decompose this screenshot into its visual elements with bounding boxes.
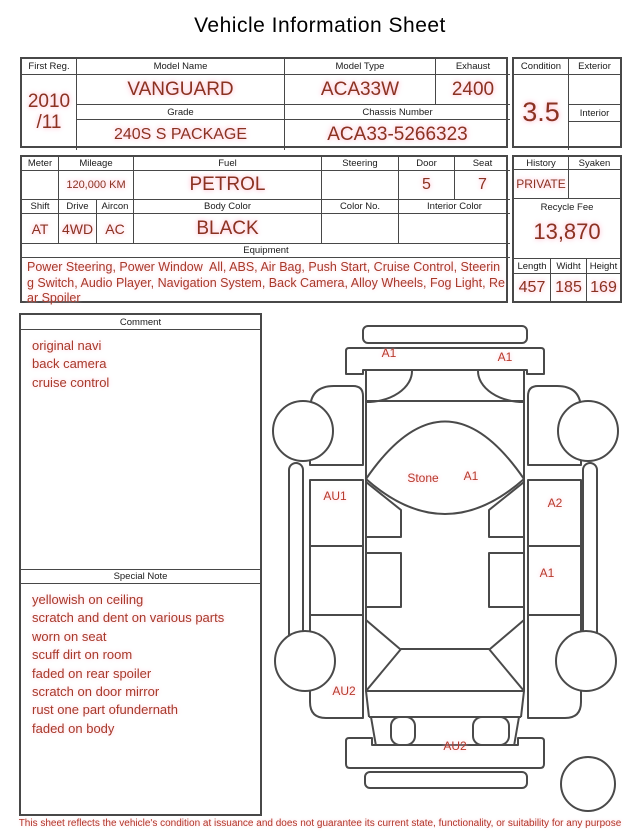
equipment-label: Equipment [22,244,510,258]
steering-label: Steering [322,157,399,171]
comment-header: Comment [21,315,260,330]
exhaust-value: 2400 [436,75,510,105]
interior-label: Interior [569,105,620,122]
footer-disclaimer: This sheet reflects the vehicle's condit… [0,818,640,829]
length-label: Length [514,259,551,274]
width-value: 185 [551,274,587,301]
vehicle-information-sheet: { "title": "Vehicle Information Sheet", … [0,0,640,835]
damage-label-windshield-stone: Stone [407,471,438,485]
special-note-line: scuff dirt on room [32,646,132,664]
history-fee-table: History Syaken PRIVATE Recycle Fee 13,87… [512,155,622,303]
syaken-value [569,170,620,199]
front-bumper [346,348,544,374]
mileage-value: 120,000 KM [59,171,134,200]
right-door-window [489,553,524,607]
exhaust-label: Exhaust [436,59,510,75]
shift-label: Shift [22,200,59,214]
special-note-line: faded on rear spoiler [32,665,151,683]
special-note-line: rust one part ofundernath [32,701,178,719]
front-right-wheel [558,401,618,461]
model-type-value: ACA33W [285,75,436,105]
interior-color-value [399,214,510,244]
hood-lines [366,371,524,401]
recycle-fee-label: Recycle Fee [541,199,594,213]
special-note-line: faded on body [32,720,114,738]
steering-value [322,171,399,200]
recycle-fee-value: 13,870 [533,213,600,245]
exterior-value [569,75,620,105]
model-type-label: Model Type [285,59,436,75]
first-reg-label: First Reg. [22,59,77,75]
interior-color-label: Interior Color [399,200,510,214]
special-note-line: worn on seat [32,628,106,646]
hood-arcs [366,371,524,402]
equipment-text: Power Steering, Power Window All, ABS, A… [22,258,510,305]
recycle-fee-cell: Recycle Fee 13,870 [514,199,620,259]
fuel-value: PETROL [134,171,322,200]
exterior-label: Exterior [569,59,620,75]
damage-label-front-right: A1 [498,350,513,364]
drive-label: Drive [59,200,97,214]
front-bumper-strip [363,326,527,343]
left-door-window [366,553,401,607]
damage-label-left-rear-fender: AU2 [332,684,355,698]
syaken-label: Syaken [569,157,620,170]
comment-line: original navi [32,337,101,355]
color-no-value [322,214,399,244]
interior-value [569,122,620,150]
right-front-door [528,480,581,546]
fuel-label: Fuel [134,157,322,171]
damage-label-front-left: A1 [382,346,397,360]
history-value: PRIVATE [514,170,569,199]
condition-table: Condition 3.5 Exterior Interior [512,57,622,148]
comment-line: cruise control [32,374,109,392]
chassis-number-label: Chassis Number [285,105,510,120]
model-name-label: Model Name [77,59,285,75]
page-title: Vehicle Information Sheet [0,14,640,38]
color-no-label: Color No. [322,200,399,214]
special-note-line: scratch and dent on various parts [32,609,224,627]
rear-pillar-lines [366,620,524,649]
comment-line: back camera [32,355,106,373]
history-label: History [514,157,569,170]
damage-label-rear-bumper: AU2 [443,739,466,753]
mileage-label: Mileage [59,157,134,171]
grade-value: 240S S PACKAGE [77,120,285,150]
left-rear-door [310,546,363,615]
seat-label: Seat [455,157,510,171]
length-value: 457 [514,274,551,301]
spare-tire [561,757,615,811]
aircon-value: AC [97,214,134,244]
shift-value: AT [22,214,59,244]
condition-label: Condition [514,59,569,75]
left-tail-light [391,717,415,745]
grade-label: Grade [77,105,285,120]
identity-table: First Reg. 2010 /11 Model Name VANGUARD … [20,57,508,148]
comment-content: original navi back camera cruise control [21,330,260,569]
condition-value: 3.5 [514,75,569,150]
body-color-label: Body Color [134,200,322,214]
rear-right-wheel [556,631,616,691]
rear-bumper-strip [365,772,527,788]
damage-label-right-front-door: A2 [548,496,563,510]
meter-value [22,171,59,200]
chassis-number-value: ACA33-5266323 [285,120,510,150]
front-left-wheel [273,401,333,461]
right-rear-door [528,546,581,615]
rear-left-wheel [275,631,335,691]
spec-table: Meter Mileage Fuel Steering Door Seat 12… [20,155,508,303]
model-name-value: VANGUARD [77,75,285,105]
door-label: Door [399,157,455,171]
damage-label-right-rear-door: A1 [540,566,555,580]
first-reg-value: 2010 /11 [22,75,77,150]
seat-value: 7 [455,171,510,200]
special-note-line: scratch on door mirror [32,683,159,701]
damage-label-windshield: A1 [464,469,479,483]
drive-value: 4WD [59,214,97,244]
aircon-label: Aircon [97,200,134,214]
width-label: Widht [551,259,587,274]
body-color-value: BLACK [134,214,322,244]
rear-window [366,649,524,691]
height-value: 169 [587,274,620,301]
comment-box: Comment original navi back camera cruise… [19,313,262,816]
right-tail-light [473,717,509,745]
height-label: Height [587,259,620,274]
special-note-content: yellowish on ceiling scratch and dent on… [21,584,260,814]
special-note-header: Special Note [21,569,260,584]
damage-label-left-front-door: AU1 [323,489,346,503]
special-note-line: yellowish on ceiling [32,591,143,609]
car-damage-diagram: A1 A1 Stone A1 AU1 A2 A1 AU2 AU2 [265,315,635,815]
door-value: 5 [399,171,455,200]
meter-label: Meter [22,157,59,171]
